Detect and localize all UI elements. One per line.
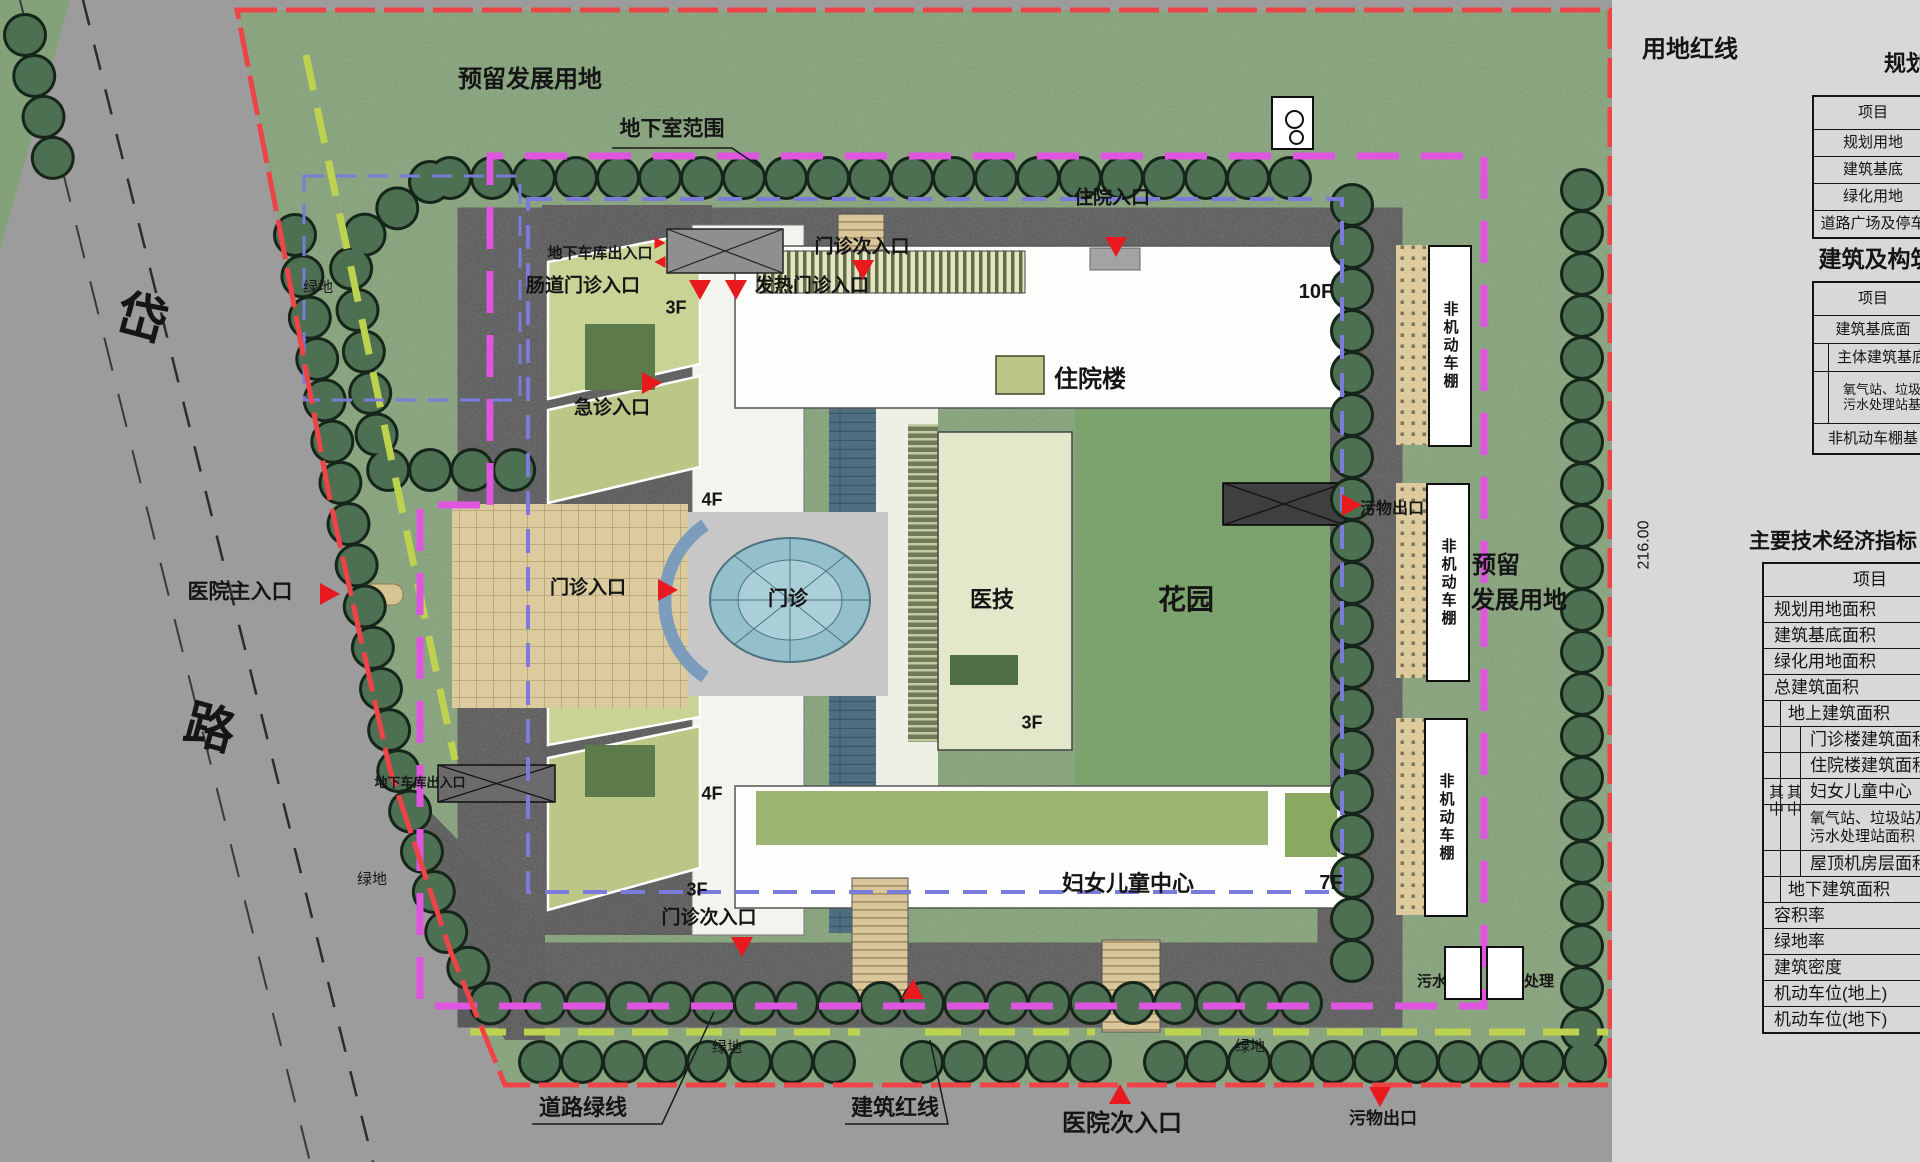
label-road-char-2: 路	[179, 695, 241, 760]
label-green-area-2: 绿地	[357, 872, 387, 888]
label-basement-range: 地下室范围	[620, 119, 725, 142]
indicators-table-title: 主要技术经济指标	[1749, 525, 1917, 555]
label-garage-exit-top: 地下车库出入口	[547, 246, 652, 262]
subgroup-label: 其中	[1783, 784, 1804, 818]
label-outpatient-entrance: 门诊入口	[550, 579, 626, 600]
garage-arrow-a-icon	[655, 237, 666, 249]
label-hospital-sub-entrance: 医院次入口	[1062, 1111, 1182, 1137]
construction-table-title: 建筑及构筑	[1819, 240, 1920, 274]
label-floor-3f-north: 3F	[665, 298, 686, 317]
outpatient-sub-top-arrow-icon	[852, 260, 874, 280]
indicators-row: 机动车位(地下)	[1764, 1006, 1920, 1032]
indicators-row: 总建筑面积	[1764, 674, 1920, 700]
oxygen-tank-icon	[1289, 130, 1304, 145]
waste-exit-bottom-arrow-icon	[1369, 1087, 1391, 1107]
label-green-area-1: 绿地	[303, 280, 333, 296]
oxygen-station-box	[1271, 96, 1314, 150]
label-floor-10f: 10F	[1299, 282, 1333, 304]
label-reserved-land-right-1: 预留	[1472, 553, 1520, 579]
planning-row: 项目	[1814, 97, 1920, 129]
label-outpatient-sub-entrance-bottom: 门诊次入口	[661, 909, 756, 930]
indicators-row: 绿化用地面积	[1764, 648, 1920, 674]
label-floor-3f-south: 3F	[686, 880, 707, 899]
planning-table: 项目规划用地建筑基底绿化用地道路广场及停车	[1812, 95, 1920, 239]
planning-table-title: 规划	[1884, 46, 1920, 78]
label-reserved-land-top: 预留发展用地	[458, 67, 602, 93]
indicators-row: 建筑基底面积	[1764, 622, 1920, 648]
indicators-row: 住院楼建筑面积	[1764, 752, 1920, 778]
construction-row: 主体建筑基底	[1814, 343, 1920, 371]
planning-row: 道路广场及停车	[1814, 210, 1920, 237]
label-floor-3f-medtech: 3F	[1021, 713, 1042, 732]
bicycle-shed-3: 非机动车棚	[1424, 718, 1468, 917]
label-bowel-clinic-entrance: 肠道门诊入口	[526, 277, 640, 298]
label-floor-4f-b: 4F	[701, 784, 722, 803]
indicators-row: 门诊楼建筑面积	[1764, 726, 1920, 752]
indicators-table: 项目规划用地面积建筑基底面积绿化用地面积总建筑面积地上建筑面积门诊楼建筑面积住院…	[1762, 562, 1920, 1034]
label-inpatient-building: 住院楼	[1054, 367, 1126, 393]
label-garden: 花园	[1158, 585, 1214, 615]
label-women-children-center: 妇女儿童中心	[1062, 872, 1194, 896]
construction-indent-rule	[1828, 343, 1829, 423]
garage-arrow-b-icon	[655, 256, 666, 268]
indicators-row: 屋顶机房层面积	[1764, 850, 1920, 876]
label-inpatient-entrance: 住院入口	[1074, 189, 1150, 210]
indicators-row: 建筑密度	[1764, 954, 1920, 980]
label-medical-tech-building: 医技	[970, 588, 1014, 612]
construction-table: 项目建筑基底面主体建筑基底氧气站、垃圾 污水处理站基非机动车棚基	[1812, 281, 1920, 455]
label-road-green-line: 道路绿线	[539, 1096, 627, 1120]
construction-row: 非机动车棚基	[1814, 423, 1920, 453]
waste-exit-mid-arrow-icon	[1342, 494, 1362, 516]
indicators-row: 绿地率	[1764, 928, 1920, 954]
fever-entrance-arrow-icon	[725, 280, 747, 300]
waste-treatment-box	[1486, 946, 1524, 1000]
site-plan-stage: 规划 建筑及构筑 主要技术经济指标 预留发展用地地下室范围用地红线216.00岱…	[0, 0, 1920, 1162]
outpatient-sub-bottom-arrow-icon	[731, 937, 753, 957]
bicycle-shed-1: 非机动车棚	[1428, 245, 1472, 447]
indicators-row: 项目	[1764, 564, 1920, 596]
indicators-row: 机动车位(地上)	[1764, 980, 1920, 1006]
label-outpatient-sub-entrance-top: 门诊次入口	[814, 238, 909, 259]
planning-row: 绿化用地	[1814, 183, 1920, 210]
planning-row: 规划用地	[1814, 129, 1920, 156]
label-road-char-1: 岱	[111, 285, 173, 350]
label-hospital-main-entrance: 医院主入口	[188, 582, 293, 605]
label-land-red-line: 用地红线	[1642, 37, 1738, 63]
construction-row: 项目	[1814, 283, 1920, 315]
inpatient-entrance-arrow-icon	[1105, 237, 1127, 257]
indicators-row: 地上建筑面积	[1764, 700, 1920, 726]
bowel-entrance-arrow-icon	[689, 280, 711, 300]
label-green-area-4: 绿地	[1235, 1039, 1265, 1055]
label-waste-exit-bottom: 污物出口	[1349, 1110, 1417, 1128]
hospital-sub-entrance-arrow-icon	[1109, 1084, 1131, 1104]
construction-row: 氧气站、垃圾 污水处理站基	[1814, 371, 1920, 423]
emergency-entrance-arrow-icon	[642, 372, 662, 394]
label-outpatient-plaza: 门诊	[768, 589, 808, 611]
label-floor-4f-a: 4F	[701, 490, 722, 509]
annotation-overlay: 规划 建筑及构筑 主要技术经济指标 预留发展用地地下室范围用地红线216.00岱…	[0, 0, 1920, 1162]
indicators-row: 规划用地面积	[1764, 596, 1920, 622]
label-emergency-entrance: 急诊入口	[574, 399, 650, 420]
indicators-row: 容积率	[1764, 902, 1920, 928]
south-path-arrow-icon	[902, 979, 924, 999]
label-reserved-land-right-2: 发展用地	[1471, 588, 1567, 614]
label-waste-exit-mid: 污物出口	[1360, 500, 1424, 517]
label-building-red-line: 建筑红线	[851, 1096, 939, 1120]
label-green-area-3: 绿地	[712, 1040, 742, 1056]
bicycle-shed-2: 非机动车棚	[1426, 483, 1470, 682]
label-garage-exit-bottom: 地下车库出入口	[374, 776, 465, 790]
outpatient-entrance-arrow-icon	[658, 579, 678, 601]
oxygen-tank-icon	[1285, 110, 1304, 129]
label-dim-216: 216.00	[1635, 521, 1652, 570]
main-entrance-arrow-icon	[320, 583, 340, 605]
label-floor-7f: 7F	[1319, 873, 1342, 895]
indicators-row: 地下建筑面积	[1764, 876, 1920, 902]
construction-row: 建筑基底面	[1814, 315, 1920, 343]
sewage-treatment-box	[1444, 946, 1482, 1000]
planning-row: 建筑基底	[1814, 156, 1920, 183]
